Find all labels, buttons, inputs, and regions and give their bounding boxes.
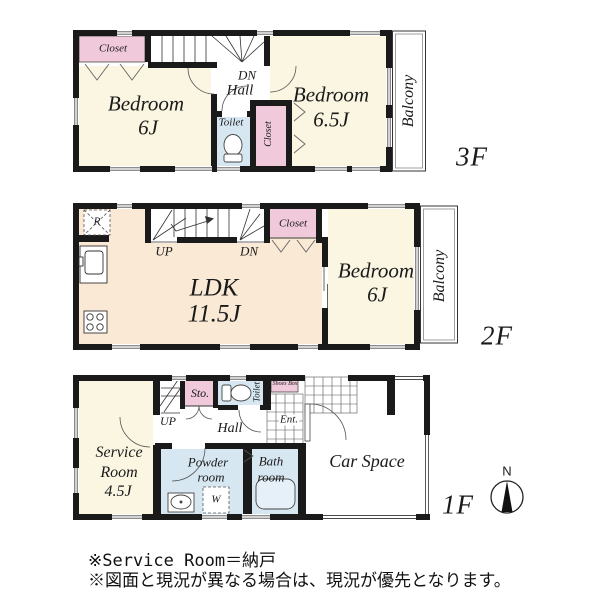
floor-label-1f: 1F [442,492,474,519]
stair-dn-label: DN [238,69,256,82]
kitchen-counter [79,246,107,283]
stair-up-label: UP [155,245,172,258]
entrance-label: Ent. [279,415,299,426]
note-service-room: ※Service Room＝納戸 [88,551,276,571]
bath-room-name: room [258,471,285,484]
toilet-label: Toilet [219,118,244,129]
balcony-label: Balcony [432,250,448,302]
floor-label-2f: 2F [481,323,513,350]
bedroom-size: 6J [138,118,158,139]
stove-icon [84,311,107,333]
shoes-box-label: Shoes Box [273,381,298,387]
note-disclaimer: ※図面と現況が異なる場合は、現況が優先となります。 [88,571,511,591]
toilet-icon [222,385,251,401]
sink-icon [168,493,194,512]
ldk-size: 11.5J [188,302,241,327]
service-room-size: 4.5J [104,484,131,500]
bedroom-size: 6J [367,285,387,306]
floor-label-3f: 3F [456,144,488,171]
bath-room-name: Bath [259,455,284,468]
bedroom-name: Bedroom [108,94,184,115]
storage-label: Sto. [191,387,209,399]
compass-north-label: N [502,465,511,478]
powder-room-name: Powder [188,456,228,469]
refrigerator-label: R [94,217,101,228]
compass-icon [491,481,523,513]
service-room-name: Service [95,445,142,461]
floor-plan: Closet DN Hall Bedroom 6J Toilet Closet … [0,0,600,600]
hall-label: Hall [227,84,254,99]
bedroom-name: Bedroom [338,261,414,282]
closet-label: Closet [279,219,307,230]
balcony-label: Balcony [401,75,417,127]
toilet-icon [224,135,242,163]
ldk-name: LDK [190,276,239,301]
service-room-name: Room [100,465,137,481]
car-space-label: Car Space [329,452,405,470]
bedroom-name: Bedroom [293,85,369,106]
stair-dn-label: DN [240,245,258,258]
toilet-label: Toilet [253,382,262,402]
stair-up-label: UP [160,415,176,427]
closet-label: Closet [99,44,127,55]
powder-room-name: room [198,471,225,484]
bedroom-size: 6.5J [313,110,349,131]
sink-icon [85,251,103,274]
hall-label: Hall [218,422,243,436]
washer-label: W [211,495,220,506]
closet-label: Closet [264,121,274,147]
